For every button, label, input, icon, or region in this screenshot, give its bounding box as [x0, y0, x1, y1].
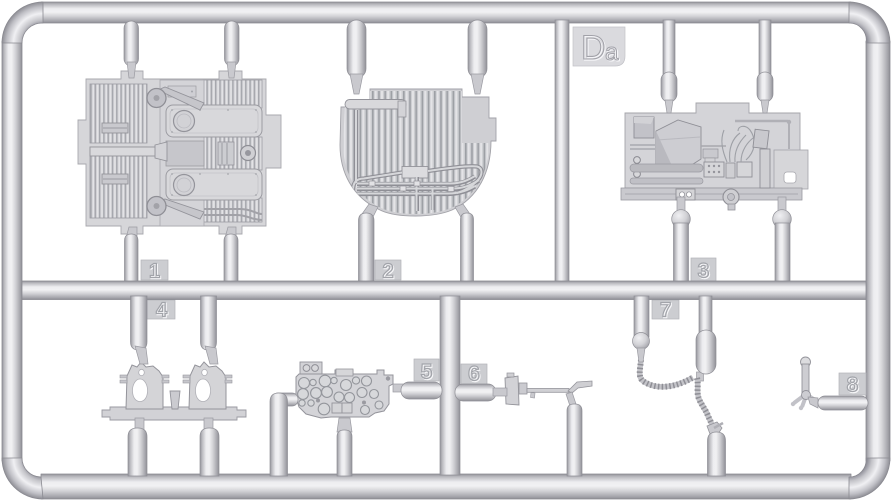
svg-text:2: 2: [382, 261, 393, 283]
svg-text:3: 3: [698, 260, 710, 283]
svg-text:8: 8: [847, 374, 859, 397]
svg-text:4: 4: [156, 300, 168, 322]
svg-text:a: a: [605, 39, 619, 66]
svg-text:1: 1: [149, 261, 160, 283]
svg-text:D: D: [581, 29, 606, 67]
svg-text:6: 6: [468, 363, 480, 386]
svg-text:5: 5: [421, 361, 433, 384]
svg-text:7: 7: [660, 300, 671, 322]
